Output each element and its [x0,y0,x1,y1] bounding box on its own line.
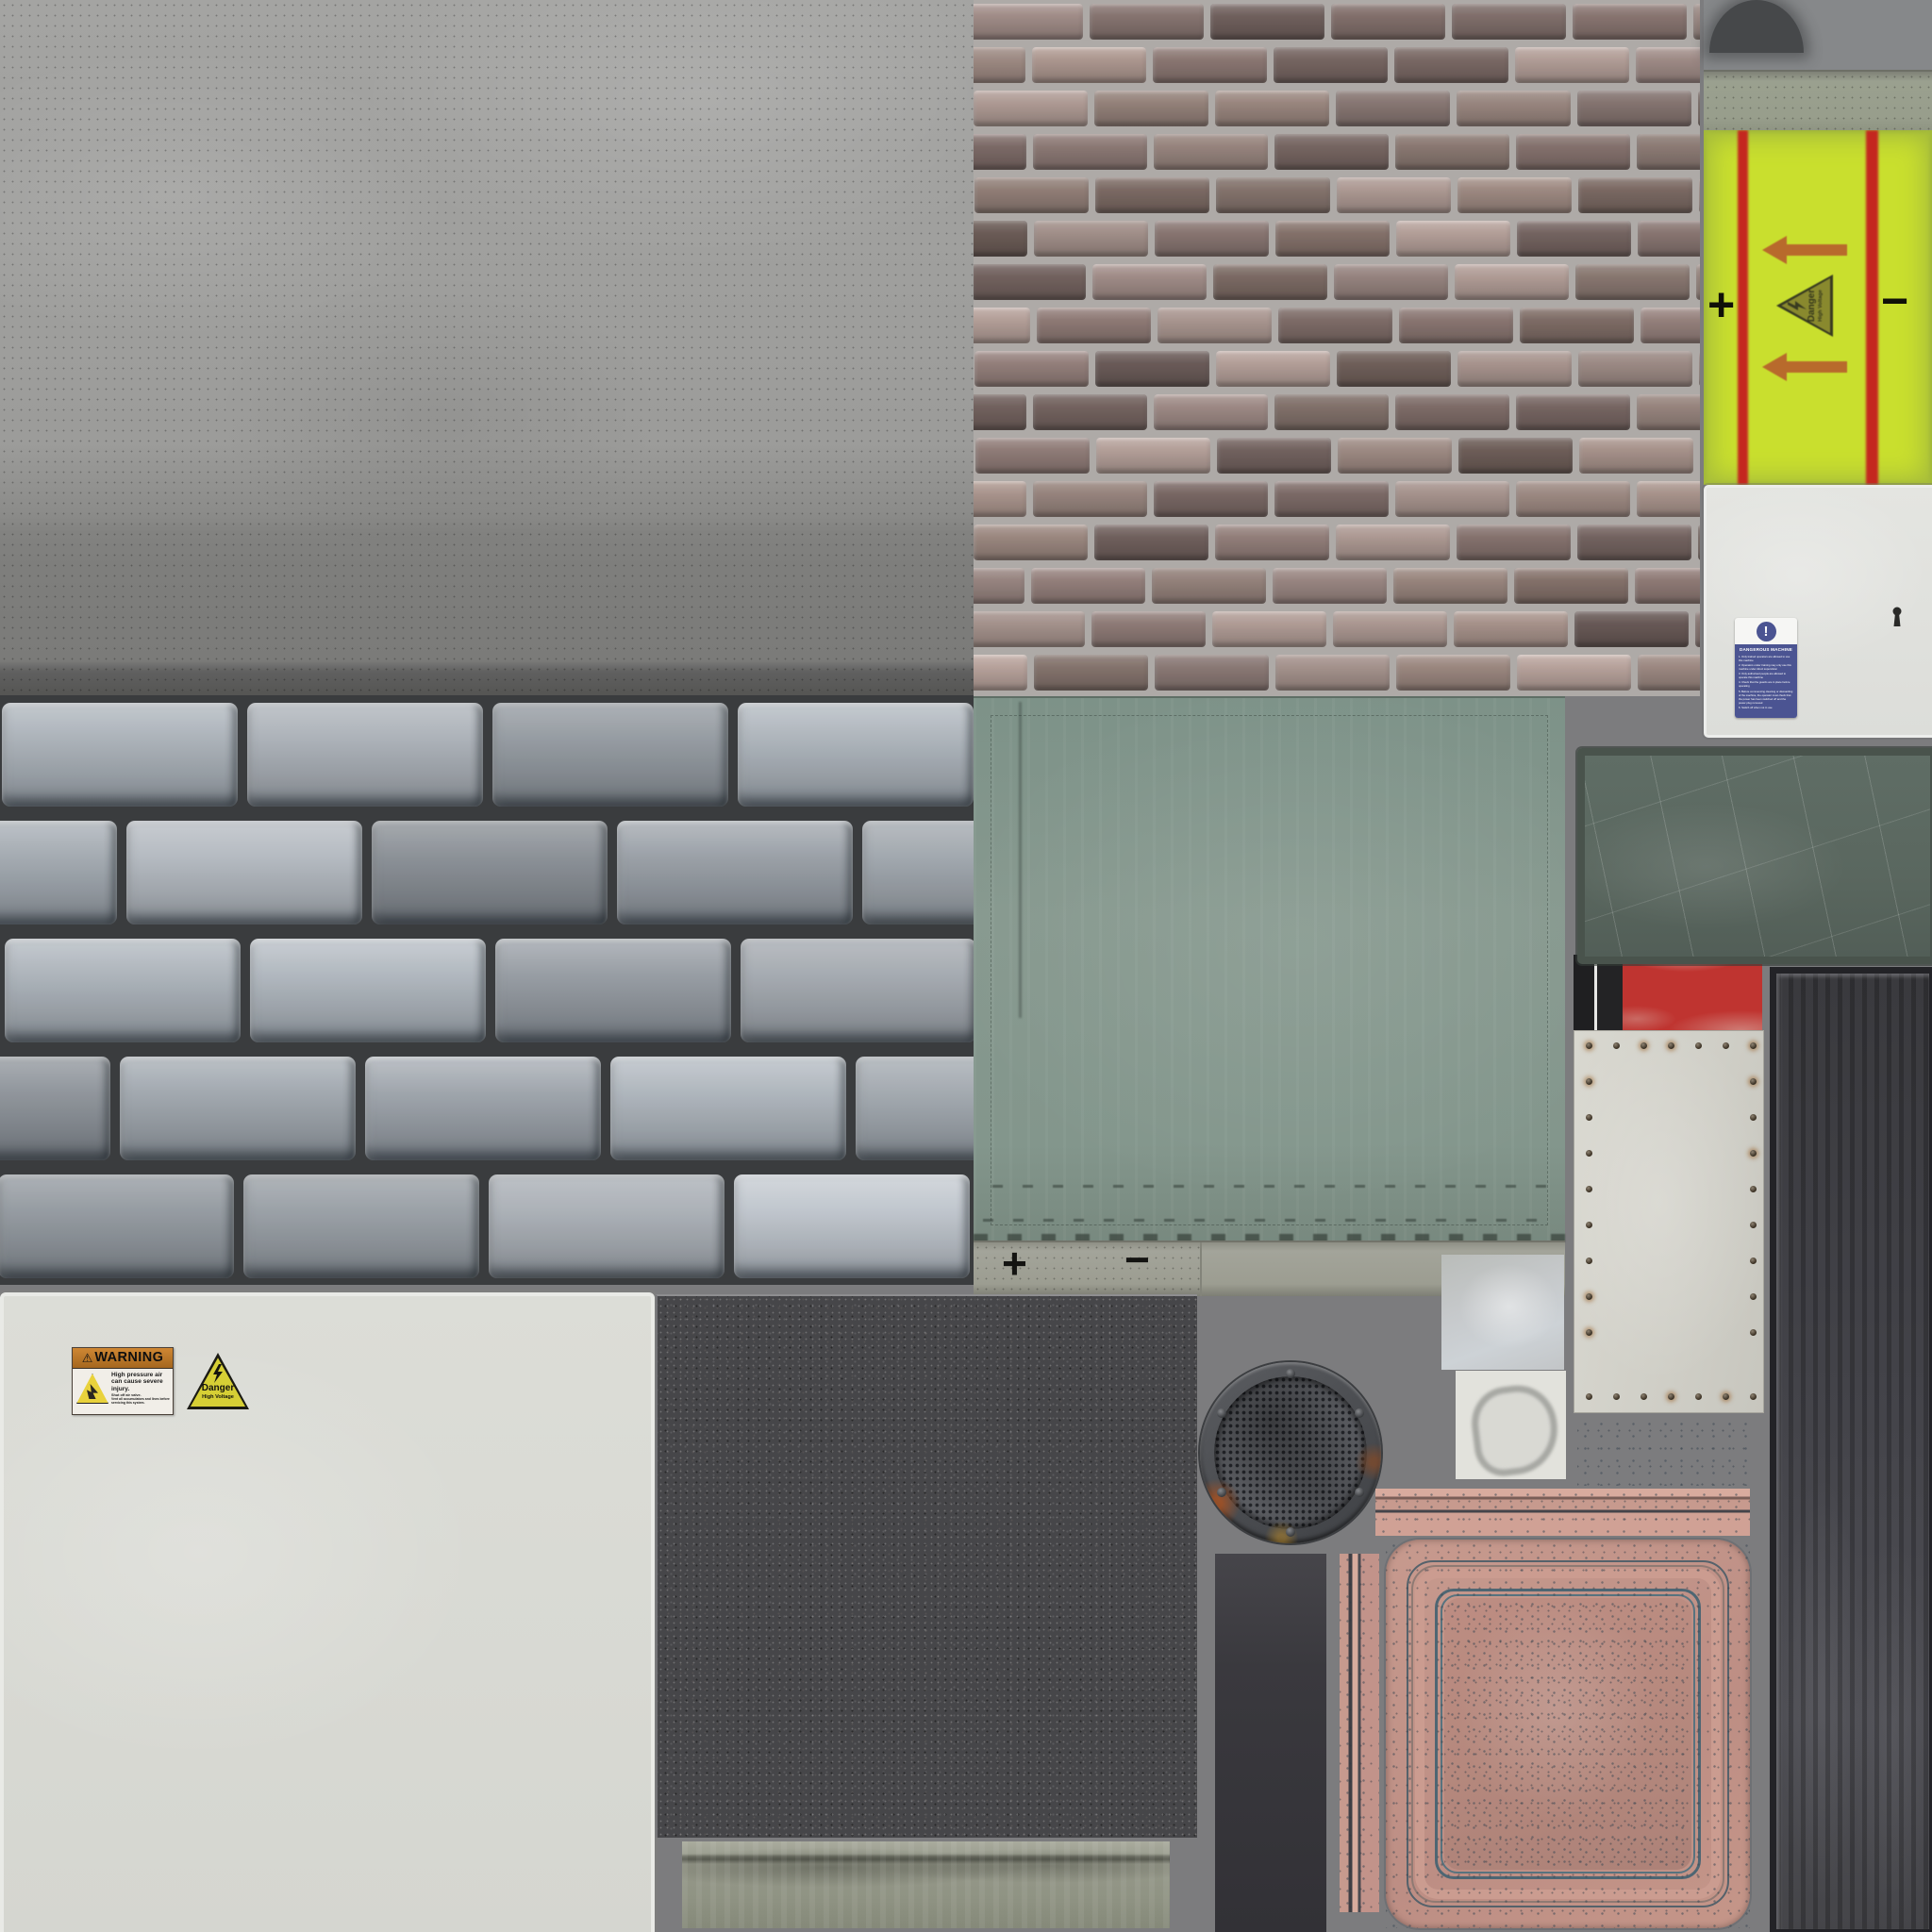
brick [1095,351,1209,387]
rivet [1750,1329,1757,1336]
stone-block [243,1174,479,1278]
dark-plank-texture [1770,967,1932,1932]
brick [1336,91,1450,126]
brick [1034,655,1148,691]
brick [1396,221,1510,257]
brick [1094,91,1208,126]
arrow-left-icon [1762,353,1849,381]
copper-trim-band [1375,1489,1750,1536]
brick [1395,481,1509,517]
paint-blob-patch-texture [1456,1371,1566,1479]
rivet [1586,1393,1592,1400]
sticker-item: 5. Before commencing cleaning or dismant… [1739,690,1793,705]
brick [1337,351,1451,387]
white-concrete-slab-texture: ⚠ WARNING High pressure air can cause se… [0,1292,655,1932]
perforated-mesh [1214,1376,1367,1529]
rivet [1586,1186,1592,1192]
plus-symbol: + [1707,281,1735,328]
rivet [1586,1222,1592,1228]
brick [1031,568,1145,604]
brick [1514,568,1628,604]
scratched-green-plate-texture [1577,748,1932,964]
blob-outline [1468,1381,1563,1479]
brick [1155,655,1269,691]
rivet [1613,1393,1620,1400]
brick [974,91,1088,126]
brick [1455,264,1569,300]
red-section [1623,955,1762,1030]
red-stripe [1866,130,1878,485]
brick [1337,177,1451,213]
arrow-shaft [1785,361,1847,373]
brick [1457,177,1572,213]
brick [1638,655,1700,691]
rivet [1750,1078,1757,1085]
brick [1152,568,1266,604]
brick [1274,481,1389,517]
rivet [1586,1042,1592,1049]
brick [1577,91,1691,126]
tile-inner-field [1444,1598,1691,1870]
copper-ceiling-tile-texture [1386,1540,1750,1928]
brick [1394,47,1508,83]
inner-dashed-border [991,715,1548,1225]
stone-block [492,703,728,807]
stone-block [610,1057,846,1160]
brick [1395,134,1509,170]
plaster-patch-texture [1441,1255,1564,1370]
brick [974,568,1024,604]
warning-header: ⚠ WARNING [73,1348,173,1369]
sticker-header: ! [1735,618,1797,644]
rivet [1723,1042,1729,1049]
brick [1641,308,1700,343]
brick [975,438,1090,474]
brick [1154,134,1268,170]
asphalt-texture [656,1294,1197,1838]
arch-recess-shape [1709,0,1804,53]
brick [1452,4,1566,40]
plus-symbol: + [1002,1241,1027,1285]
arrow-shaft [1785,244,1847,256]
brick [1333,611,1447,647]
brick [1033,481,1147,517]
stone-block [247,703,483,807]
brick [1331,4,1445,40]
arrow-head [1762,236,1787,264]
brick [1274,134,1389,170]
brick [1699,351,1700,387]
sticker-item: 1. Only trained operators are allowed to… [1739,655,1793,662]
rivet [1586,1150,1592,1157]
rivet [1723,1393,1729,1400]
lightning-bolt-icon [211,1364,225,1383]
danger-high-voltage-sign: Danger High Voltage [1776,275,1833,337]
rivet [1750,1114,1757,1121]
brick [1092,264,1207,300]
riveted-metal-panel-texture [1574,1030,1764,1413]
brick [974,655,1027,691]
rivet [1750,1222,1757,1228]
brick [974,611,1085,647]
keyhole-icon [1891,607,1903,627]
brick [1336,525,1450,560]
dangerous-machine-sticker: ! DANGEROUS MACHINE 1. Only trained oper… [1735,618,1797,718]
minus-symbol: − [1124,1238,1150,1281]
lightning-bolt-icon [1788,299,1807,312]
sticker-item: 6. Switch off when not in use [1739,706,1793,709]
dark-slab-texture [1215,1554,1326,1932]
brick [1516,394,1630,430]
brick [1213,264,1327,300]
brick [1458,438,1573,474]
brick [1273,568,1387,604]
brick [1091,611,1206,647]
brick [1637,394,1700,430]
arrow-left-icon [1762,236,1849,264]
brick [974,264,1086,300]
brick [974,481,1026,517]
stone-block [617,821,853,924]
minus-symbol: − [1881,277,1908,325]
brick [974,177,1089,213]
brick [1090,4,1204,40]
brick [974,308,1030,343]
copper-trim-vertical [1340,1554,1379,1912]
stone-block [372,821,608,924]
high-voltage-label: High Voltage [187,1395,249,1401]
brick [1516,481,1630,517]
sticker-body: DANGEROUS MACHINE 1. Only trained operat… [1735,644,1797,718]
brick [1153,47,1267,83]
brick [1573,4,1687,40]
rivet [1641,1393,1647,1400]
pressure-hazard-pictogram [76,1374,108,1404]
brick [1575,264,1690,300]
brick-wall-texture [974,0,1700,696]
rivet [1641,1042,1647,1049]
stone-block [0,821,117,924]
black-section [1574,955,1623,1030]
brick [1158,308,1272,343]
brick [1577,525,1691,560]
stone-block [489,1174,724,1278]
danger-high-voltage-sign: Danger High Voltage [187,1353,249,1409]
brick [1695,611,1700,647]
stone-block-wall-texture [0,695,974,1285]
brick [1210,4,1324,40]
warning-line3: Vent all accumulators and lines before s… [111,1397,170,1405]
brick [1578,351,1692,387]
grille-rivet [1286,1369,1295,1378]
brick [1574,611,1689,647]
brick [1396,655,1510,691]
brick [1154,394,1268,430]
brick [1155,221,1269,257]
scuff-mark [983,1219,1556,1222]
stone-block [126,821,362,924]
brick [1636,47,1700,83]
brick [974,4,1083,40]
stone-block [856,1057,974,1160]
green-metal-panel-texture [974,696,1565,1242]
brick [1516,134,1630,170]
texture-atlas: + − Danger High Voltage ! DANGEROUS MACH… [0,0,1932,1932]
stone-block [741,939,974,1042]
speaker-grille-texture [1200,1362,1381,1543]
brick [1094,525,1208,560]
brick [1275,221,1390,257]
brick [1032,47,1146,83]
battery-hazard-panel-texture: + − Danger High Voltage [1704,130,1932,485]
warning-triangle-icon: ⚠ [82,1352,93,1364]
stone-block [862,821,974,924]
brick [974,525,1088,560]
brick [1520,308,1634,343]
concrete-wall-texture [0,0,974,695]
rivet [1750,1393,1757,1400]
stone-block [734,1174,970,1278]
high-voltage-label: High Voltage [1819,275,1824,337]
brick [1037,308,1151,343]
brick [1334,264,1448,300]
grille-rivet [1217,1488,1226,1497]
rivet [1613,1042,1620,1049]
brick [1399,308,1513,343]
brick [974,47,1025,83]
rivet [1750,1257,1757,1264]
rivet [1750,1293,1757,1300]
brick [1517,221,1631,257]
arch-wall-texture [1704,0,1932,70]
brick [1457,525,1571,560]
rivet [1750,1150,1757,1157]
high-pressure-warning-sticker: ⚠ WARNING High pressure air can cause se… [72,1347,174,1415]
brick [1454,611,1568,647]
rivet [1586,1114,1592,1121]
brick [1033,134,1147,170]
stone-block [738,703,974,807]
copper-trim-band [1577,1418,1750,1486]
rivet [1750,1042,1757,1049]
warning-body: High pressure air can cause severe injur… [73,1369,173,1407]
mossy-curb-texture [682,1841,1170,1928]
white-access-panel-texture: ! DANGEROUS MACHINE 1. Only trained oper… [1704,485,1932,738]
brick [1216,351,1330,387]
brick [1579,438,1693,474]
brick [1457,91,1571,126]
scuff-mark [1019,702,1022,1018]
stone-block [365,1057,601,1160]
brick [1274,47,1388,83]
grille-rivet [1286,1527,1295,1537]
warning-line1: High pressure air can cause severe injur… [111,1372,170,1392]
brick [1635,568,1700,604]
brick [974,351,1089,387]
brick [974,221,1027,257]
arrow-head [1762,353,1787,381]
brick [1217,438,1331,474]
exclamation-icon: ! [1757,622,1776,641]
stone-block [495,939,731,1042]
brick [1034,221,1148,257]
brick [1395,394,1509,430]
brick [1699,177,1700,213]
rivet [1695,1042,1702,1049]
brick [1393,568,1507,604]
sticker-item: 2. Operators under training may only use… [1739,663,1793,671]
rivet [1750,1186,1757,1192]
brick [1096,438,1210,474]
brick [1338,438,1452,474]
brick [1698,525,1700,560]
danger-label: Danger [1807,275,1817,337]
sticker-title: DANGEROUS MACHINE [1739,647,1793,652]
brick [1637,481,1700,517]
rivet [1668,1042,1674,1049]
brick [1517,655,1631,691]
stone-block [2,703,238,807]
rivet [1586,1257,1592,1264]
sticker-item: 3. Only authorised people are allowed to… [1739,672,1793,679]
rivet [1586,1329,1592,1336]
brick [1696,264,1700,300]
brick [1578,177,1692,213]
brick [1275,655,1390,691]
brick [1154,481,1268,517]
stone-block [250,939,486,1042]
brick [1033,394,1147,430]
brick [1637,134,1700,170]
brick [1216,177,1330,213]
brick [1278,308,1392,343]
brick [1515,47,1629,83]
brick [1215,525,1329,560]
grille-rivet [1355,1488,1364,1497]
brick [1457,351,1572,387]
brick [974,134,1026,170]
danger-label: Danger [187,1384,249,1393]
brick [1698,91,1700,126]
sticker-item: 4. Check that the guards are in place be… [1739,680,1793,688]
rivet [1695,1393,1702,1400]
stone-block [5,939,241,1042]
red-black-painted-strip-texture [1574,955,1762,1030]
rivet [1586,1293,1592,1300]
warning-word: WARNING [94,1351,163,1365]
red-stripe [1738,130,1748,485]
brick [1638,221,1700,257]
mossy-ledge-texture [1704,70,1932,132]
brick [974,394,1026,430]
brick [1274,394,1389,430]
grille-rivet [1355,1408,1364,1418]
stone-block [0,1174,234,1278]
stone-block [0,1057,110,1160]
warning-text: High pressure air can cause severe injur… [111,1372,170,1405]
scuff-mark [992,1185,1546,1188]
rivet [1586,1078,1592,1085]
brick [1212,611,1326,647]
brick [1693,4,1700,40]
stone-block [120,1057,356,1160]
brick [1215,91,1329,126]
rivet [1668,1393,1674,1400]
brick [1095,177,1209,213]
